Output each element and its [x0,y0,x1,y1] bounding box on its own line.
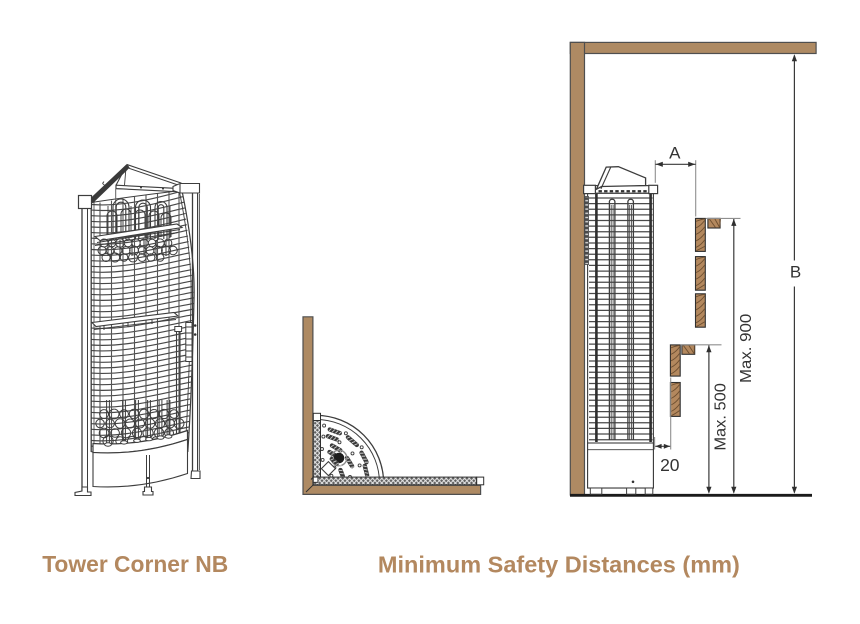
svg-text:Max. 500: Max. 500 [713,383,730,451]
svg-text:Tower Corner NB: Tower Corner NB [42,551,228,577]
svg-text:A: A [669,144,681,163]
svg-text:Max. 900: Max. 900 [738,313,755,383]
svg-text:B: B [790,263,801,282]
svg-text:Minimum Safety Distances (mm): Minimum Safety Distances (mm) [378,552,740,578]
svg-text:20: 20 [660,455,680,475]
